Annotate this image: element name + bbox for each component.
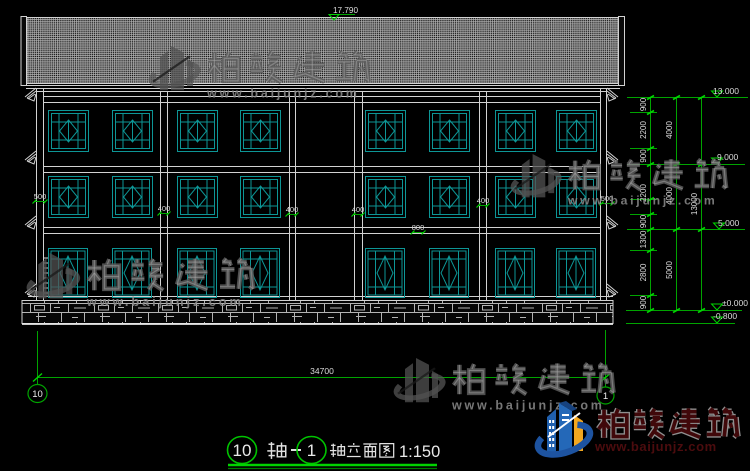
svg-text:10: 10	[32, 389, 43, 400]
svg-text:900: 900	[639, 97, 648, 111]
svg-text:±0.000: ±0.000	[722, 298, 748, 308]
svg-text:-0.800: -0.800	[713, 311, 737, 321]
svg-text:1: 1	[307, 441, 316, 460]
svg-text:900: 900	[639, 149, 648, 163]
svg-text:1:150: 1:150	[399, 443, 440, 461]
svg-text:www.baijunjz.com: www.baijunjz.com	[206, 87, 360, 101]
svg-text:400: 400	[477, 196, 490, 205]
svg-text:www.baijunjz.com: www.baijunjz.com	[594, 439, 717, 454]
svg-text:1300: 1300	[639, 230, 648, 248]
svg-text:4000: 4000	[665, 121, 674, 139]
svg-text:17.790: 17.790	[333, 6, 358, 15]
svg-text:900: 900	[639, 295, 648, 309]
svg-text:13.000: 13.000	[713, 86, 739, 96]
svg-text:400: 400	[352, 205, 365, 214]
svg-text:5000: 5000	[665, 261, 674, 279]
svg-text:www.baijunjz.com: www.baijunjz.com	[86, 294, 244, 309]
svg-text:9.000: 9.000	[717, 152, 739, 162]
svg-text:10: 10	[233, 441, 252, 460]
svg-text:34700: 34700	[310, 366, 334, 376]
svg-text:2200: 2200	[639, 121, 648, 139]
svg-text:5.000: 5.000	[718, 218, 740, 228]
svg-text:www.baijunjz.com: www.baijunjz.com	[451, 399, 605, 413]
svg-text:400: 400	[286, 205, 299, 214]
svg-text:2800: 2800	[639, 263, 648, 281]
svg-text:400: 400	[158, 204, 171, 213]
svg-text:900: 900	[639, 214, 648, 228]
svg-text:www.baijunjz.com: www.baijunjz.com	[567, 193, 718, 207]
